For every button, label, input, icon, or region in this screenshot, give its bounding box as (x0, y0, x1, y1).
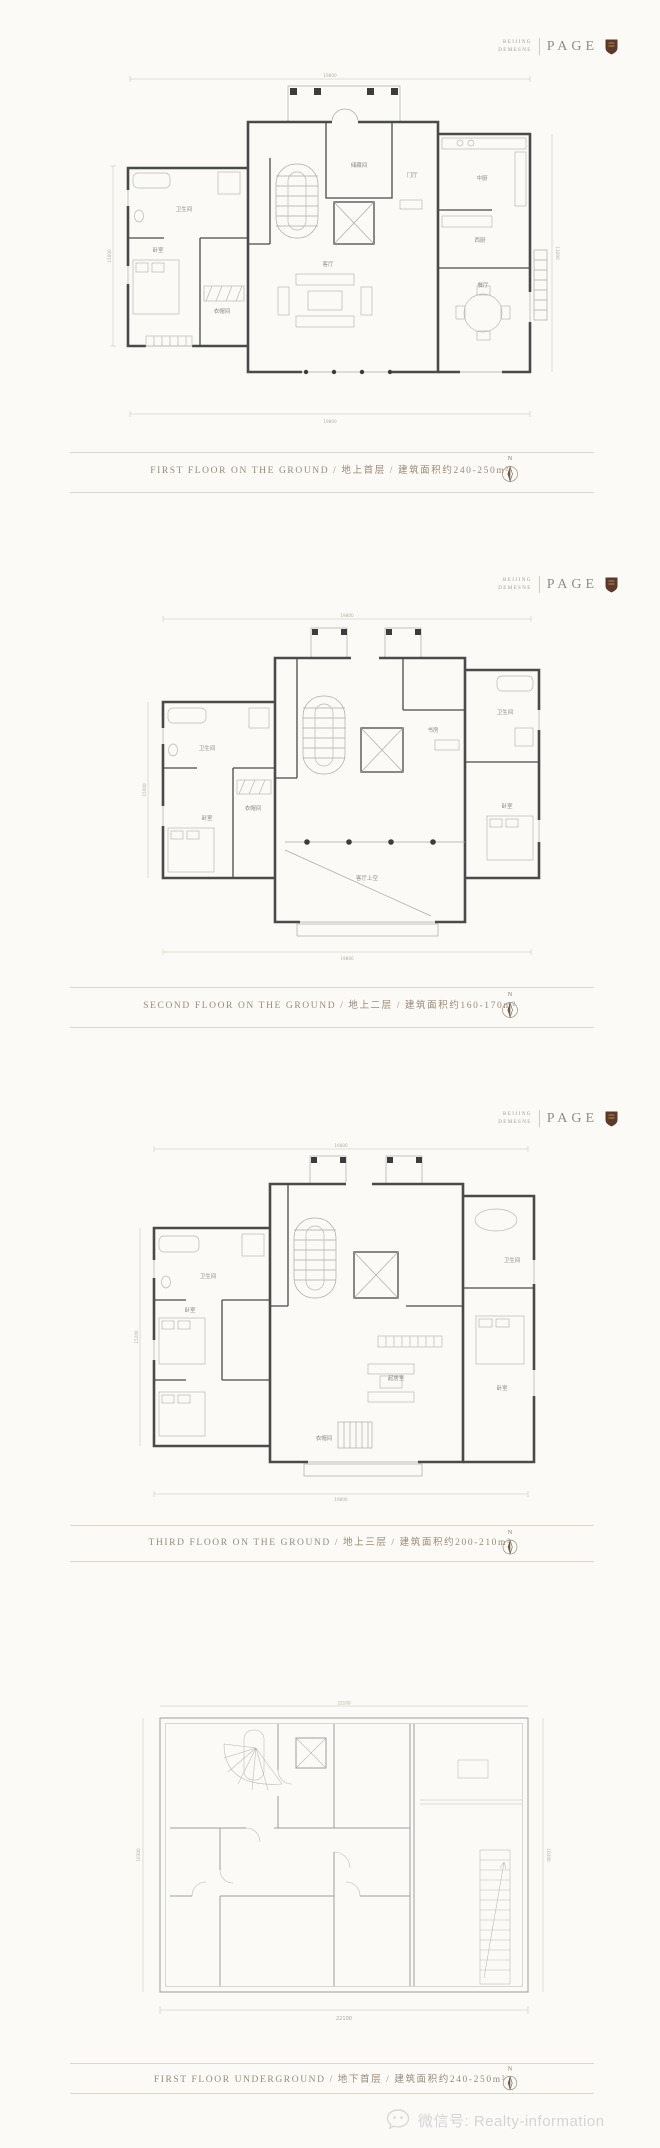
dimension-label: 22100 (336, 2016, 352, 2022)
caption-rule (70, 2093, 594, 2094)
room-label: 起居室 (388, 1374, 405, 1382)
room-label: 餐厅 (477, 281, 489, 289)
brand-name: PAGE (547, 577, 598, 593)
shield-icon (605, 577, 618, 593)
room-label: 卫生间 (504, 1256, 521, 1264)
dimension-label: 10300 (546, 1848, 551, 1862)
dimension-label: 19800 (334, 1143, 348, 1148)
room-label: 中厨 (476, 174, 488, 182)
room-label: 卧室 (184, 1306, 196, 1314)
dimension-label: 10300 (136, 1848, 141, 1862)
compass-icon: N (499, 988, 521, 1022)
floor-caption: FIRST FLOOR UNDERGROUND / 地下首层 / 建筑面积约24… (0, 2071, 660, 2085)
brand-logo: BEIJINGDEMESNE PAGE (498, 38, 618, 55)
shield-icon (605, 39, 618, 55)
room-label: 衣帽间 (316, 1434, 333, 1442)
brand-logo: BEIJINGDEMESNE PAGE (498, 576, 618, 593)
room-label: 门厅 (406, 171, 418, 179)
dimension-label: 19800 (340, 956, 354, 960)
room-label: 衣帽间 (245, 804, 262, 812)
floor-caption: FIRST FLOOR ON THE GROUND / 地上首层 / 建筑面积约… (0, 462, 660, 476)
room-label: 卧室 (501, 802, 513, 810)
floor-caption: SECOND FLOOR ON THE GROUND / 地上二层 / 建筑面积… (0, 997, 660, 1011)
room-label: 卧室 (152, 246, 164, 254)
logo-divider (539, 38, 540, 55)
third-floor-plan-drawing: 19800 15200 19800 (128, 1140, 558, 1502)
underground-floor-plan-drawing: 22100 10300 10300 22100 (128, 1700, 558, 2030)
wechat-icon (386, 2108, 412, 2132)
room-label: 客厅上空 (356, 874, 379, 882)
logo-divider (539, 576, 540, 593)
room-label: 卫生间 (176, 205, 193, 213)
caption-rule (70, 492, 594, 493)
brand-name: PAGE (547, 39, 598, 55)
watermark-text: 微信号: Realty-information (418, 2110, 605, 2131)
brand-city: BEIJINGDEMESNE (498, 577, 531, 593)
brand-logo: BEIJINGDEMESNE PAGE (498, 1110, 618, 1127)
room-label: 卫生间 (200, 1272, 217, 1280)
room-label: 卧室 (201, 814, 213, 822)
floorplan-page: BEIJINGDEMESNE PAGE 19800 15000 13200 19… (0, 0, 660, 2148)
room-label: 客厅 (322, 260, 334, 268)
room-label: 储藏间 (351, 161, 368, 169)
compass-icon: N (499, 1526, 521, 1558)
compass-n-label: N (508, 991, 513, 998)
watermark: 微信号: Realty-information (386, 2108, 605, 2132)
room-label: 卫生间 (497, 708, 514, 716)
compass-n-label: N (508, 1529, 513, 1536)
room-label: 卧室 (496, 1384, 508, 1392)
brand-city: BEIJINGDEMESNE (498, 1111, 531, 1127)
dimension-label: 19800 (334, 1497, 348, 1502)
dimension-label: 15200 (134, 1330, 139, 1344)
dimension-label: 19800 (340, 613, 354, 618)
floor-caption: THIRD FLOOR ON THE GROUND / 地上三层 / 建筑面积约… (0, 1534, 660, 1548)
shield-icon (605, 1111, 618, 1127)
dimension-label: 13200 (555, 246, 560, 260)
room-label: 书房 (427, 726, 439, 734)
brand-city: BEIJINGDEMESNE (498, 39, 531, 55)
caption-rule (70, 1027, 594, 1028)
caption-rule (70, 1561, 594, 1562)
room-label: 卫生间 (199, 744, 216, 752)
dimension-label: 22100 (337, 1701, 351, 1706)
compass-n-label: N (508, 2066, 513, 2073)
dimension-label: 15000 (107, 249, 112, 263)
logo-divider (539, 1110, 540, 1127)
second-floor-plan-drawing: 19800 15000 19800 (135, 610, 555, 960)
dimension-label: 15000 (142, 783, 147, 797)
compass-icon: N (499, 452, 521, 486)
dimension-label: 19800 (323, 419, 337, 424)
compass-n-label: N (508, 455, 513, 462)
first-floor-plan-drawing: 19800 15000 13200 19800 (100, 70, 560, 438)
brand-name: PAGE (547, 1111, 598, 1127)
room-label: 西厨 (474, 237, 486, 244)
room-label: 衣帽间 (214, 307, 231, 315)
dimension-label: 19800 (323, 73, 337, 78)
compass-icon: N (499, 2063, 521, 2093)
